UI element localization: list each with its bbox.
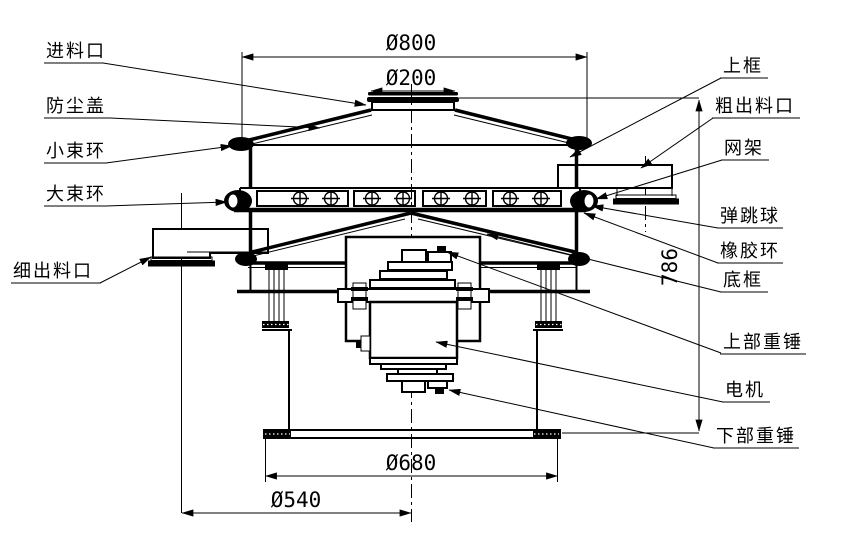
leader-coarse-outlet [641, 118, 713, 168]
label-motor: 电机 [725, 380, 765, 400]
leader-dust-cover [110, 118, 320, 128]
right-spring [535, 264, 562, 328]
label-upper-frame: 上框 [723, 56, 763, 76]
label-fine-outlet: 细出料口 [13, 261, 93, 281]
bottom-clamp-left [235, 252, 257, 266]
label-rubber-ring: 橡胶环 [720, 241, 780, 261]
label-upper-weight: 上部重锤 [723, 332, 803, 352]
motor-assembly [338, 237, 489, 394]
lower-weight-stack [370, 358, 457, 394]
machine-body [148, 92, 679, 438]
label-bouncing-ball: 弹跳球 [720, 206, 780, 226]
leader-large-clamp-ring [106, 202, 227, 206]
vibrating-sieve-technical-drawing: Ø800 Ø200 786 Ø680 Ø540 [0, 0, 860, 539]
lower-weight-bolt [435, 388, 444, 394]
label-small-clamp-ring: 小束环 [46, 141, 106, 161]
leader-lower-weight [449, 390, 714, 448]
dim-label-base-diameter: Ø680 [386, 451, 437, 475]
dim-label-top-diameter: Ø800 [386, 31, 437, 55]
leader-fine-outlet [100, 257, 151, 283]
dim-label-base-circle: Ø540 [271, 488, 322, 512]
leader-rubber-ring [584, 213, 718, 263]
dim-label-inlet-diameter: Ø200 [386, 66, 437, 90]
label-dust-cover: 防尘盖 [46, 96, 106, 116]
label-feed-inlet: 进料口 [46, 41, 106, 61]
leader-upper-frame [570, 78, 721, 157]
motor-body [356, 302, 457, 358]
leader-small-clamp-ring [106, 146, 232, 163]
bouncing-balls [291, 191, 550, 207]
small-clamp-ring-left [228, 137, 254, 151]
feed-inlet-flange [367, 92, 459, 110]
label-mesh-frame: 网架 [724, 138, 764, 158]
label-bottom-frame: 底框 [723, 270, 763, 290]
left-spring [262, 264, 289, 328]
leader-motor [436, 342, 723, 402]
label-lower-weight: 下部重锤 [716, 426, 796, 446]
leader-feed-inlet [103, 63, 366, 105]
dim-base-circle: Ø540 [182, 488, 411, 513]
label-coarse-outlet: 粗出料口 [715, 96, 795, 116]
label-large-clamp-ring: 大束环 [46, 184, 106, 204]
upper-weight-bolt [437, 246, 446, 252]
diagram-svg: Ø800 Ø200 786 Ø680 Ø540 [0, 0, 860, 539]
sieve-deck [234, 188, 586, 210]
dim-inlet-diameter: Ø200 [371, 66, 455, 91]
dim-label-total-height: 786 [658, 248, 682, 286]
